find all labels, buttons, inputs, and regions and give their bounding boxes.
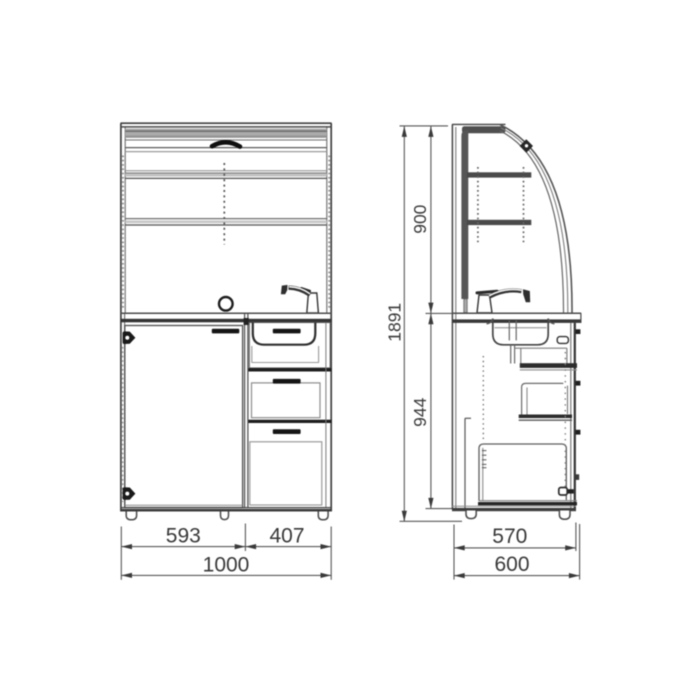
svg-text:600: 600 [494,553,529,576]
svg-text:407: 407 [269,525,304,548]
svg-text:593: 593 [166,525,201,548]
svg-text:900: 900 [410,204,430,233]
svg-text:1000: 1000 [203,554,250,577]
svg-text:1891: 1891 [385,303,405,342]
svg-text:944: 944 [410,397,430,426]
svg-text:570: 570 [492,525,527,548]
